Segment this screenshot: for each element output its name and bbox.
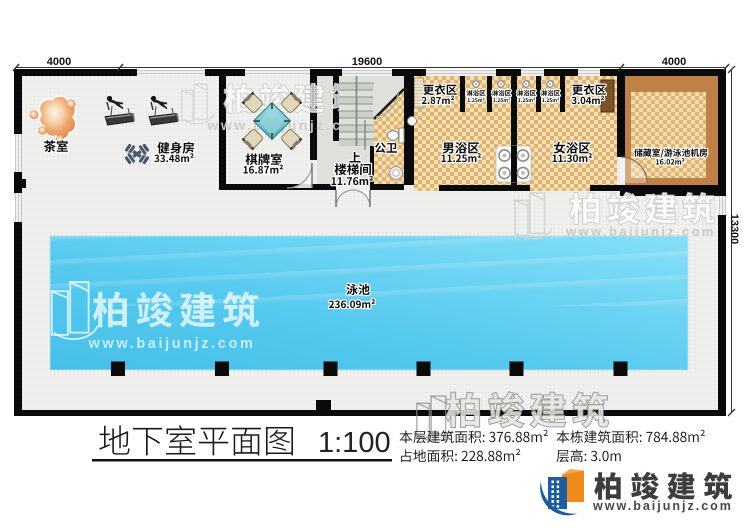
svg-text:www.baijunjz.com: www.baijunjz.com <box>565 224 716 239</box>
svg-text:19600: 19600 <box>352 56 383 68</box>
svg-text:4000: 4000 <box>47 56 71 68</box>
svg-text:1:100: 1:100 <box>318 427 391 459</box>
svg-text:13300: 13300 <box>728 214 740 245</box>
svg-text:www.baijunjz.com: www.baijunjz.com <box>88 336 256 352</box>
svg-text:4000: 4000 <box>662 56 686 68</box>
svg-text:www.baijunjz.com: www.baijunjz.com <box>592 499 733 513</box>
